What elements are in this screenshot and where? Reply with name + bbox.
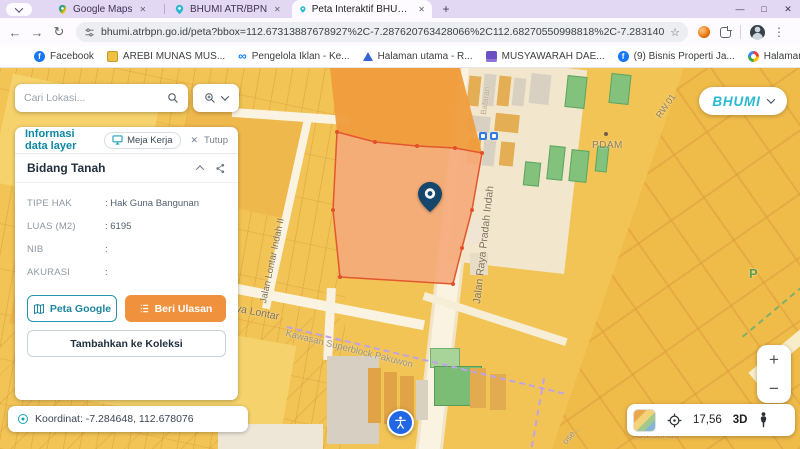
browser-menu-icon[interactable]: ⋮ — [773, 25, 785, 39]
field-label: TIPE HAK — [27, 198, 105, 209]
map-building — [499, 141, 515, 166]
profile-avatar[interactable] — [750, 25, 765, 40]
bhumi-pin-icon — [174, 4, 185, 15]
locate-icon[interactable] — [667, 413, 682, 428]
mode-3d-button[interactable]: 3D — [733, 414, 748, 426]
bookmark-label: (9) Bisnis Properti Ja... — [634, 51, 735, 62]
pegman-icon[interactable] — [758, 412, 769, 429]
review-list-icon — [139, 303, 150, 314]
transit-stop-icon[interactable] — [490, 132, 498, 140]
forward-button[interactable]: → — [26, 25, 48, 40]
site-settings-tune-icon[interactable] — [84, 27, 95, 38]
google-maps-pin-icon — [57, 4, 68, 15]
field-row: AKURASI: — [27, 261, 226, 284]
toolbar-divider — [740, 25, 741, 39]
meta-infinity-icon: ∞ — [238, 51, 247, 62]
bookmark-pengelola-iklan[interactable]: ∞Pengelola Iklan - Ke... — [238, 51, 349, 62]
chevron-down-icon — [15, 4, 23, 12]
poi-label-pdam: PDAM — [592, 140, 623, 151]
tab-search-button[interactable] — [6, 3, 32, 16]
bookmark-bisnis-properti[interactable]: f(9) Bisnis Properti Ja... — [618, 51, 735, 62]
bookmark-label: Halaman utama - R... — [378, 51, 473, 62]
facebook-icon: f — [34, 51, 45, 62]
field-label: LUAS (M2) — [27, 221, 105, 232]
close-icon[interactable]: ✕ — [191, 135, 199, 146]
meja-kerja-label: Meja Kerja — [127, 135, 172, 146]
browser-window: Google Maps ✕ BHUMI ATR/BPN ✕ Peta Inter… — [0, 0, 800, 449]
bookmarks-bar: fFacebook AREBI MUNAS MUS... ∞Pengelola … — [0, 46, 800, 68]
target-icon — [17, 413, 29, 425]
chevron-down-icon — [766, 95, 774, 103]
tambahkan-koleksi-label: Tambahkan ke Koleksi — [70, 338, 182, 350]
new-tab-button[interactable]: + — [438, 1, 454, 17]
facebook-icon: f — [618, 51, 629, 62]
beri-ulasan-label: Beri Ulasan — [155, 303, 213, 315]
map-icon — [33, 303, 45, 315]
window-maximize-button[interactable]: □ — [752, 0, 776, 18]
field-row: NIB: — [27, 238, 226, 261]
bookmark-musyawarah[interactable]: MUSYAWARAH DAE... — [486, 51, 605, 62]
tab-google-maps[interactable]: Google Maps ✕ — [50, 0, 162, 18]
chevron-down-icon — [221, 92, 229, 100]
poi-dot — [604, 132, 608, 136]
reload-button[interactable]: ↻ — [48, 24, 70, 40]
field-row: TIPE HAK: Hak Guna Bangunan — [27, 192, 226, 215]
panel-header: Informasi data layer Meja Kerja ✕ Tutup — [15, 127, 238, 154]
tab-title: BHUMI ATR/BPN — [190, 4, 267, 15]
tab-strip: Google Maps ✕ BHUMI ATR/BPN ✕ Peta Inter… — [0, 0, 800, 18]
zoom-level-value: 17,56 — [693, 414, 722, 426]
back-button[interactable]: ← — [4, 25, 26, 40]
coordinate-text: Koordinat: -7.284648, 112.678076 — [35, 413, 194, 425]
triangle-icon — [363, 52, 373, 61]
extensions-icon[interactable] — [720, 27, 731, 38]
tab-separator — [164, 4, 165, 14]
bookmark-facebook[interactable]: fFacebook — [34, 51, 94, 62]
share-icon[interactable] — [215, 163, 226, 174]
tab-close-icon[interactable]: ✕ — [139, 5, 146, 14]
field-value: : 6195 — [105, 221, 131, 232]
section-header: Bidang Tanah — [15, 154, 238, 183]
map-building-green — [608, 73, 631, 105]
field-label: AKURASI — [27, 267, 105, 278]
map-building-green — [564, 75, 587, 109]
purple-app-icon — [486, 51, 497, 62]
zoom-out-button[interactable]: − — [757, 374, 791, 403]
section-title: Bidang Tanah — [27, 161, 197, 175]
map-toolbar: 17,56 3D — [627, 404, 795, 436]
peta-google-label: Peta Google — [50, 303, 111, 315]
field-value: : Hak Guna Bangunan — [105, 198, 199, 209]
map-building-green — [568, 149, 589, 183]
parking-label: P — [749, 266, 758, 281]
url-text[interactable]: bhumi.atrbpn.go.id/peta?bbox=112.6731388… — [101, 26, 664, 38]
panel-buttons: Peta Google Beri Ulasan — [15, 288, 238, 322]
meja-kerja-button[interactable]: Meja Kerja — [104, 132, 180, 149]
parcel-fields: TIPE HAK: Hak Guna Bangunan LUAS (M2): 6… — [15, 183, 238, 288]
map-building — [368, 368, 381, 423]
map-building — [467, 115, 491, 133]
map-building — [416, 380, 428, 420]
transit-stop-icon[interactable] — [479, 132, 487, 140]
panel-title: Informasi data layer — [25, 128, 98, 152]
magnifier-plus-icon — [204, 92, 216, 104]
map-building — [494, 113, 520, 133]
bookmark-star-icon[interactable]: ☆ — [670, 26, 680, 39]
bhumi-pin-icon — [299, 4, 307, 15]
tab-close-icon[interactable]: ✕ — [418, 5, 425, 14]
tab-title: Peta Interaktif BHUMI ATR/BPN — [312, 4, 412, 15]
search-icon[interactable] — [167, 92, 179, 104]
chevron-up-icon[interactable] — [196, 165, 204, 173]
address-bar[interactable]: bhumi.atrbpn.go.id/peta?bbox=112.6731388… — [76, 22, 688, 42]
bookmark-label: MUSYAWARAH DAE... — [502, 51, 605, 62]
tab-peta-interaktif-active[interactable]: Peta Interaktif BHUMI ATR/BPN ✕ — [292, 0, 432, 18]
bhumi-logo-button[interactable]: BHUMI — [699, 87, 787, 115]
field-label: NIB — [27, 244, 105, 255]
bookmark-label: AREBI MUNAS MUS... — [123, 51, 225, 62]
zoom-control: + − — [757, 345, 791, 403]
google-icon — [748, 51, 759, 62]
bookmark-label: Facebook — [50, 51, 94, 62]
bhumi-logo-text: BHUMI — [712, 94, 760, 109]
field-value: : — [105, 244, 108, 255]
tambahkan-koleksi-button[interactable]: Tambahkan ke Koleksi — [27, 330, 226, 357]
bookmark-label: Pengelola Iklan - Ke... — [252, 51, 350, 62]
browser-toolbar: ← → ↻ bhumi.atrbpn.go.id/peta?bbox=112.6… — [0, 18, 800, 46]
map-building — [528, 73, 551, 105]
bookmark-arebi[interactable]: AREBI MUNAS MUS... — [107, 51, 225, 62]
peta-google-button[interactable]: Peta Google — [27, 295, 117, 322]
bookmark-halaman-utama-2[interactable]: Halaman utama - R... — [748, 51, 800, 62]
workspace-desk-icon — [112, 135, 123, 145]
tab-bhumi[interactable]: BHUMI ATR/BPN ✕ — [167, 0, 289, 18]
coordinate-bar: Koordinat: -7.284648, 112.678076 — [8, 406, 248, 432]
accessibility-widget-button[interactable] — [387, 409, 414, 436]
extension-orange-icon[interactable] — [698, 26, 710, 38]
location-search-box[interactable] — [15, 84, 188, 112]
bookmark-label: Halaman utama - R... — [764, 51, 800, 62]
tab-close-icon[interactable]: ✕ — [274, 5, 281, 14]
zoom-search-tool-button[interactable] — [193, 84, 239, 112]
tab-title: Google Maps — [73, 4, 132, 15]
search-input[interactable] — [24, 92, 161, 104]
field-row: LUAS (M2): 6195 — [27, 215, 226, 238]
basemap-switcher-thumbnail[interactable] — [633, 409, 656, 432]
zoom-in-button[interactable]: + — [757, 345, 791, 374]
location-pin-icon — [417, 181, 443, 218]
map-building-green — [523, 161, 541, 187]
window-minimize-button[interactable]: — — [728, 0, 752, 18]
bookmark-halaman-utama-1[interactable]: Halaman utama - R... — [363, 51, 473, 62]
window-close-button[interactable]: ✕ — [776, 0, 800, 18]
arebi-icon — [107, 51, 118, 62]
info-layer-panel: Informasi data layer Meja Kerja ✕ Tutup … — [15, 127, 238, 400]
tutup-label[interactable]: Tutup — [204, 135, 228, 146]
field-value: : — [105, 267, 108, 278]
beri-ulasan-button[interactable]: Beri Ulasan — [125, 295, 226, 322]
accessibility-person-icon — [393, 415, 408, 430]
